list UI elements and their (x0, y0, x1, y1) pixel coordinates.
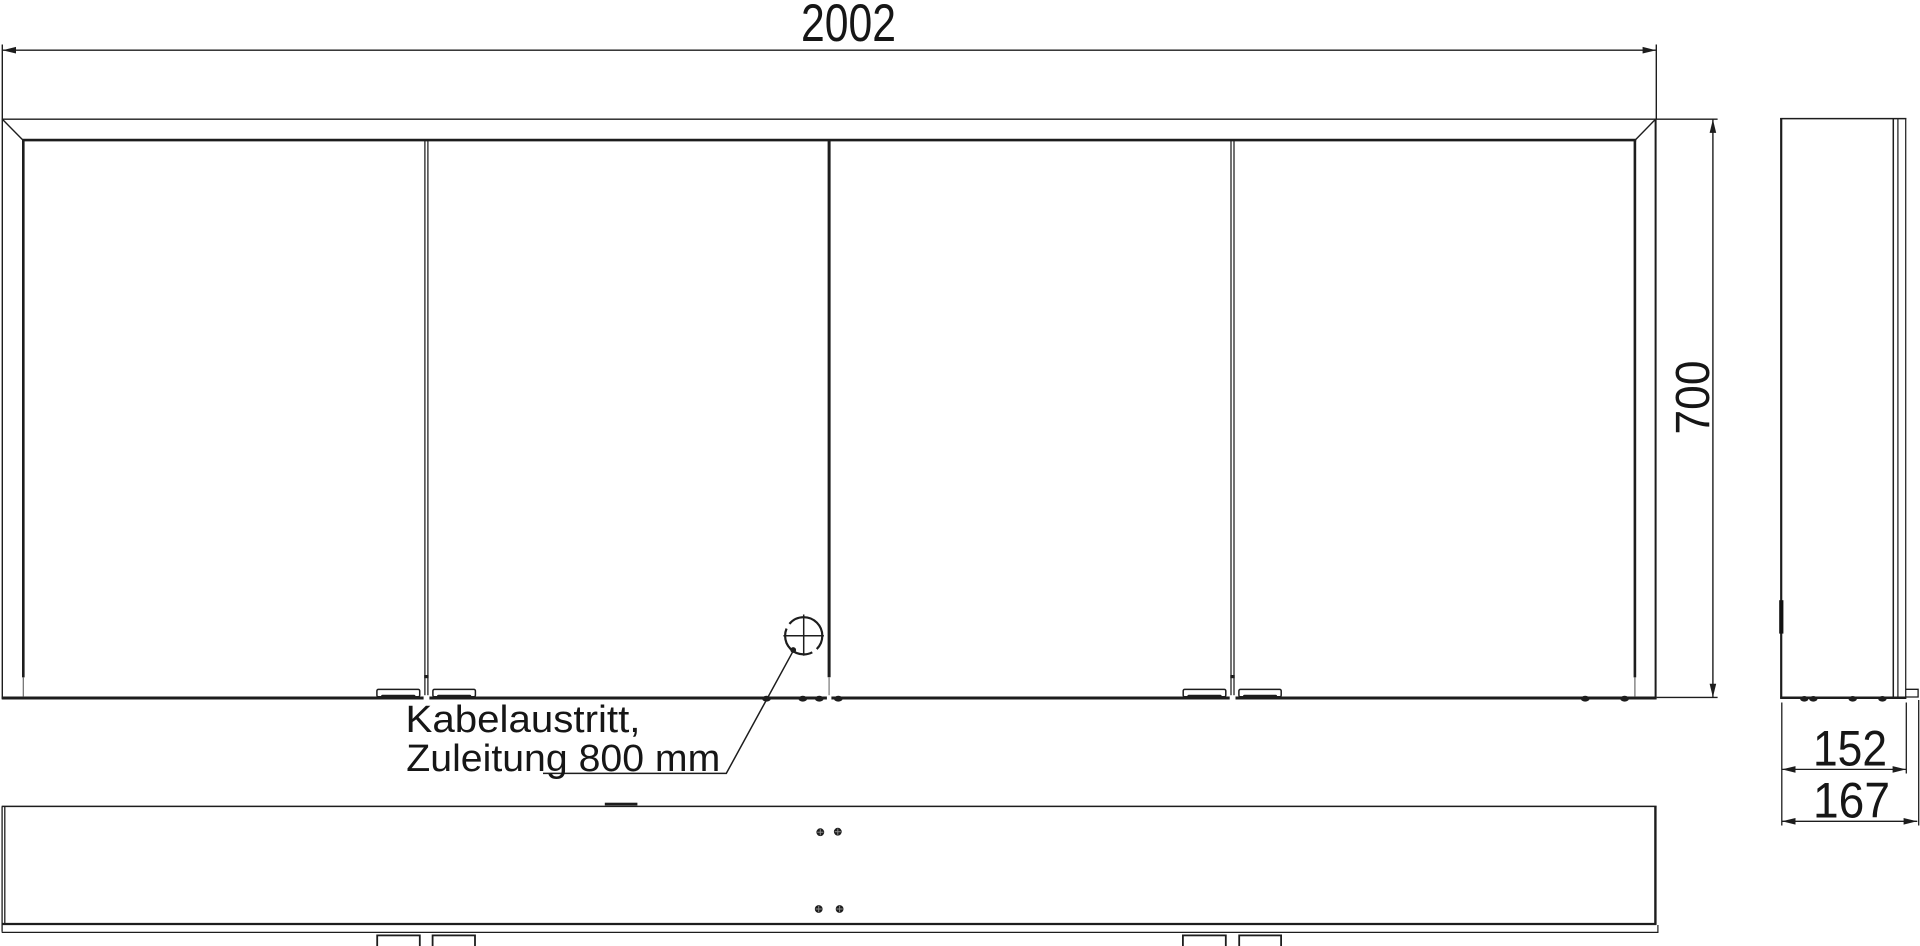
svg-text:167: 167 (1813, 772, 1890, 828)
svg-text:Zuleitung 800 mm: Zuleitung 800 mm (406, 738, 720, 780)
svg-text:2002: 2002 (801, 0, 896, 53)
svg-text:700: 700 (1667, 361, 1720, 435)
svg-text:152: 152 (1813, 720, 1887, 776)
svg-text:Kabelaustritt,: Kabelaustritt, (406, 699, 641, 741)
